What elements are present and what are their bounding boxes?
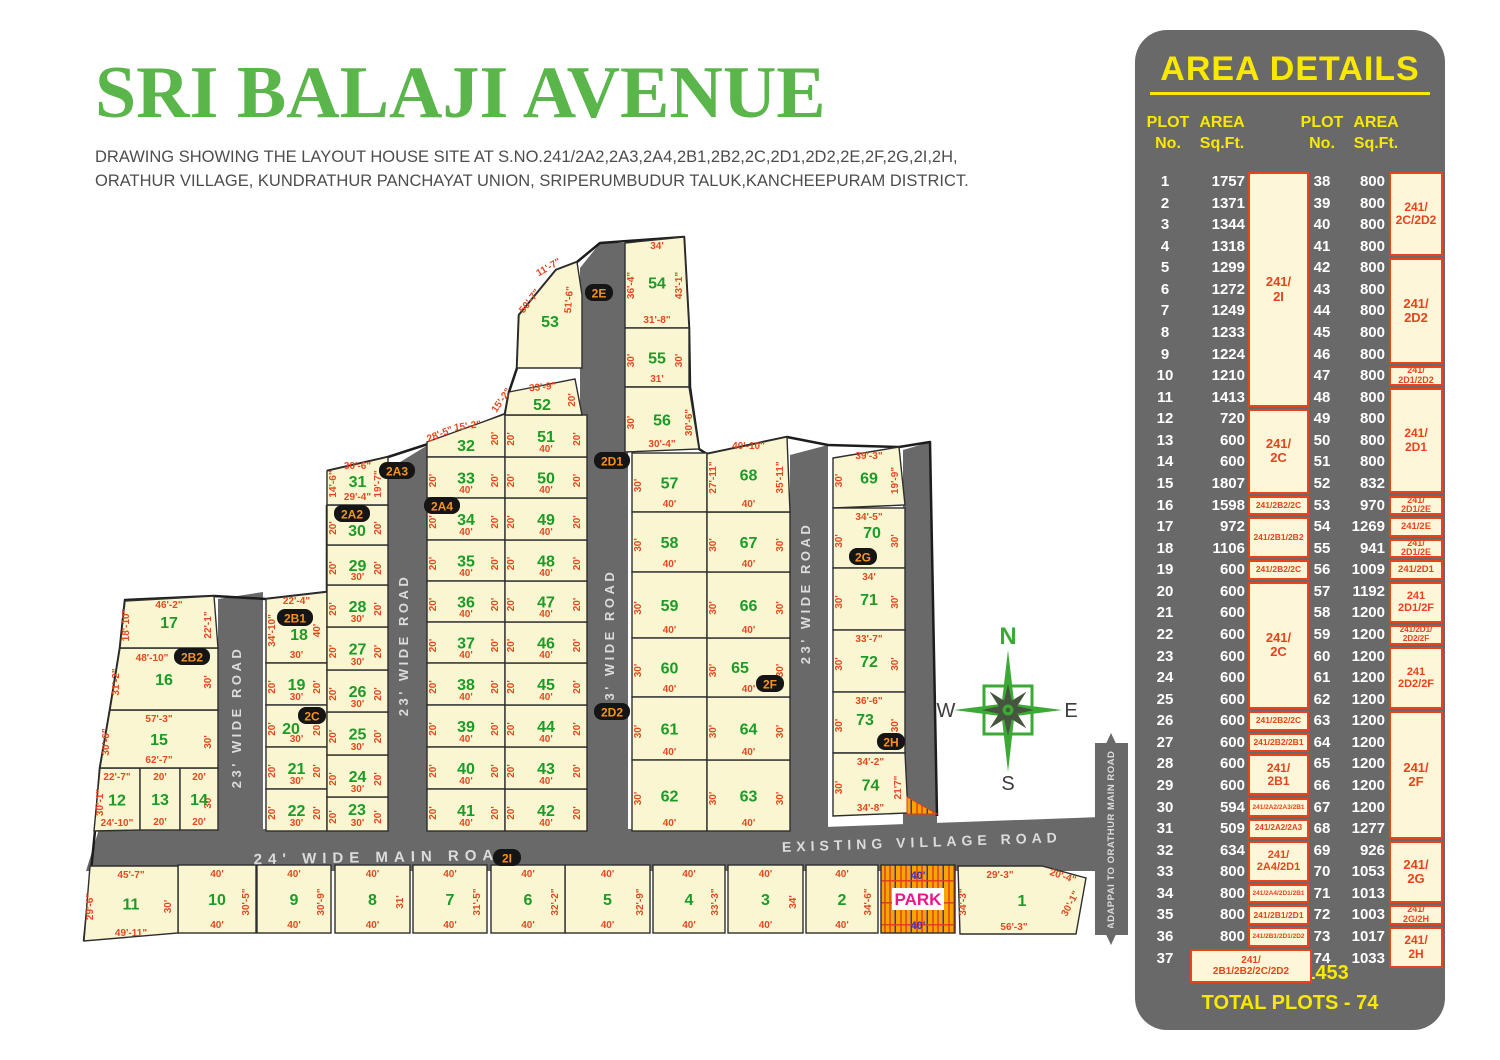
plot-area-64: 1200 <box>1325 732 1385 754</box>
plot-4-dim-bottom: 40' <box>682 920 696 931</box>
plot-18-dim-bottom: 30' <box>290 650 304 661</box>
plot-area-32: 634 <box>1185 840 1245 862</box>
plot-24-dim-left: 20' <box>328 772 339 786</box>
plot-27-dim-bottom: 30' <box>351 657 365 668</box>
plot-no-19: 19 <box>1143 559 1187 581</box>
plot-area-57: 1192 <box>1325 581 1385 603</box>
plot-area-6: 1272 <box>1185 279 1245 301</box>
plot-43-number: 43 <box>537 761 555 778</box>
plot-51-dim-right: 20' <box>572 432 583 446</box>
col-header-plot-left: PLOT <box>1143 114 1193 132</box>
badge-2E-label: 2E <box>592 287 607 301</box>
plot-23-dim-left: 20' <box>328 810 339 824</box>
col-header-no-left: No. <box>1143 135 1193 153</box>
plot-64-dim-right: 30' <box>775 725 786 739</box>
plot-52-number: 52 <box>533 397 551 414</box>
plot-20-dim-left: 20' <box>267 722 278 736</box>
plot-26-dim-right: 20' <box>373 687 384 701</box>
road-label-4: 23' WIDE ROAD <box>602 569 617 712</box>
plot-no-7: 7 <box>1143 300 1187 322</box>
plot-area-50: 800 <box>1325 430 1385 452</box>
plot-area-15: 1807 <box>1185 473 1245 495</box>
plot-no-16: 16 <box>1143 495 1187 517</box>
plot-55-number: 55 <box>648 351 666 368</box>
plot-area-56: 1009 <box>1325 559 1385 581</box>
plot-22-dim-right: 20' <box>312 806 323 820</box>
plot-area-20: 600 <box>1185 581 1245 603</box>
survey-group-241-2A2-2A3: 241/2A2/2A3 <box>1248 819 1309 839</box>
plot-69-dim-top: 39'-3" <box>855 451 882 462</box>
plot-44-dim-left: 20' <box>506 722 517 736</box>
plot-28-dim-left: 20' <box>328 602 339 616</box>
plot-area-1: 1757 <box>1185 171 1245 193</box>
plot-35-dim-right: 20' <box>490 557 501 571</box>
plot-no-5: 5 <box>1143 257 1187 279</box>
plot-area-72: 1003 <box>1325 904 1385 926</box>
plot-area-61: 1200 <box>1325 667 1385 689</box>
plot-61-number: 61 <box>661 722 679 739</box>
plot-no-27: 27 <box>1143 732 1187 754</box>
plot-7-dim-top: 40' <box>443 869 457 880</box>
plot-63-dim-left: 30' <box>708 792 719 806</box>
plot-area-29: 600 <box>1185 775 1245 797</box>
plot-62-dim-left: 30' <box>633 792 644 806</box>
badge-2D2-label: 2D2 <box>601 706 623 720</box>
plot-2-dim-right: 34'-6" <box>863 888 874 915</box>
plot-35-number: 35 <box>457 554 475 571</box>
plot-19-number: 19 <box>288 677 306 694</box>
plot-area-34: 800 <box>1185 883 1245 905</box>
area-details-title: AREA DETAILS <box>1150 50 1429 95</box>
plot-25-dim-right: 20' <box>373 730 384 744</box>
plot-no-33: 33 <box>1143 861 1187 883</box>
plot-no-21: 21 <box>1143 602 1187 624</box>
plot-54-dim-top: 34' <box>650 241 664 252</box>
plot-area-59: 1200 <box>1325 624 1385 646</box>
compass-n-label: N <box>999 623 1016 650</box>
plot-area-62: 1200 <box>1325 689 1385 711</box>
plot-40-number: 40 <box>457 761 475 778</box>
plot-no-32: 32 <box>1143 840 1187 862</box>
plot-49-dim-left: 20' <box>506 515 517 529</box>
plot-12-dim-left: 30'-1" <box>95 789 106 816</box>
plot-49-number: 49 <box>537 512 555 529</box>
plot-56-dim-left: 30' <box>626 416 637 430</box>
plot-27-dim-right: 20' <box>373 645 384 659</box>
survey-group-241-2G: 241/2G <box>1389 841 1443 904</box>
plot-area-30: 594 <box>1185 797 1245 819</box>
plot-no-4: 4 <box>1143 236 1187 258</box>
plot-63-dim-right: 30' <box>775 792 786 806</box>
plot-46-dim-left: 20' <box>506 639 517 653</box>
plot-10-dim-bottom: 40' <box>210 920 224 931</box>
plot-no-36: 36 <box>1143 926 1187 948</box>
survey-group-241-2F: 241/2F <box>1389 711 1443 838</box>
plot-68-dim-right: 35'-11" <box>775 461 786 493</box>
plot-4-dim-right: 33'-3" <box>710 888 721 915</box>
plot-area-19: 600 <box>1185 559 1245 581</box>
plot-71-dim-top: 34' <box>862 572 876 583</box>
plot-66-dim-left: 30' <box>708 601 719 615</box>
plot-area-48: 800 <box>1325 387 1385 409</box>
plot-29-dim-right: 20' <box>373 561 384 575</box>
survey-group-241-2B1-2B2-2C-2D2: 241/2B1/2B2/2C/2D2 <box>1190 949 1312 983</box>
plot-area-65: 1200 <box>1325 753 1385 775</box>
plot-no-18: 18 <box>1143 538 1187 560</box>
plot-area-71: 1013 <box>1325 883 1385 905</box>
plot-69-number: 69 <box>860 471 878 488</box>
plot-62-number: 62 <box>661 789 679 806</box>
plot-70-dim-top: 34'-5" <box>855 512 882 523</box>
col-header-plot-right: PLOT <box>1297 114 1347 132</box>
plot-33-dim-left: 20' <box>428 474 439 488</box>
badge-2C-label: 2C <box>304 710 320 724</box>
plot-74-dim-top: 34'-2" <box>857 757 884 768</box>
plot-45-dim-right: 20' <box>572 680 583 694</box>
plot-54-dim-left: 36'-4" <box>626 272 637 299</box>
plot-44-dim-right: 20' <box>572 722 583 736</box>
plot-13-dim-bottom: 20' <box>153 817 167 828</box>
plot-2-dim-top: 40' <box>835 869 849 880</box>
plot-area-40: 800 <box>1325 214 1385 236</box>
plot-16-dim-left: 31'-2" <box>111 668 122 695</box>
compass-hub-dot <box>1006 708 1010 712</box>
col-header-area-left: AREA <box>1195 114 1249 132</box>
plot-21-dim-left: 20' <box>267 764 278 778</box>
plot-58-number: 58 <box>661 535 679 552</box>
survey-group-241-2A2-2A3-2B1: 241/2A2/2A3/2B1 <box>1248 798 1309 818</box>
plot-area-54: 1269 <box>1325 516 1385 538</box>
plot-area-52: 832 <box>1325 473 1385 495</box>
plot-area-69: 926 <box>1325 840 1385 862</box>
badge-2D1-label: 2D1 <box>601 455 623 469</box>
plot-area-5: 1299 <box>1185 257 1245 279</box>
plot-area-55: 941 <box>1325 538 1385 560</box>
plot-9-dim-right: 30'-9" <box>316 888 327 915</box>
badge-2I-label: 2I <box>502 852 512 866</box>
plot-61-dim-bottom: 40' <box>663 747 677 758</box>
plot-1-dim: 56'-3" <box>1000 922 1027 933</box>
plot-no-25: 25 <box>1143 689 1187 711</box>
plot-area-12: 720 <box>1185 408 1245 430</box>
col-header-area-right: AREA <box>1347 114 1405 132</box>
plot-3-dim-bottom: 40' <box>759 920 773 931</box>
plot-39-dim-right: 20' <box>490 722 501 736</box>
plot-67-dim-left: 30' <box>708 538 719 552</box>
plot-74-number: 74 <box>862 778 880 795</box>
plot-46-dim-right: 20' <box>572 639 583 653</box>
survey-group-241-2B1-2D1: 241/2B1/2D1 <box>1248 905 1309 925</box>
plot-2-number: 2 <box>838 892 847 909</box>
plot-73-dim-right: 30' <box>890 719 901 733</box>
plot-39-number: 39 <box>457 719 475 736</box>
plot-45-number: 45 <box>537 677 555 694</box>
plot-40-dim-left: 20' <box>428 764 439 778</box>
survey-group-241-2I: 241/2I <box>1248 172 1309 407</box>
plot-area-7: 1249 <box>1185 300 1245 322</box>
plot-no-6: 6 <box>1143 279 1187 301</box>
plot-no-10: 10 <box>1143 365 1187 387</box>
park-dim-bottom: 40' <box>911 920 926 932</box>
plot-3-dim-right: 34' <box>788 895 799 909</box>
page-title: SRI BALAJI AVENUE <box>95 56 935 130</box>
plot-36-dim-left: 20' <box>428 598 439 612</box>
plot-21-number: 21 <box>288 761 306 778</box>
plot-47-dim-right: 20' <box>572 598 583 612</box>
plot-74-dim-right: 21'7" <box>893 775 904 799</box>
survey-group-241-2G-2H: 241/2G/2H <box>1389 905 1443 925</box>
plot-15-number: 15 <box>150 732 168 749</box>
survey-group-241-2D1-2E: 241/2D1/2E <box>1389 496 1443 516</box>
plot-no-34: 34 <box>1143 883 1187 905</box>
plot-42-dim-left: 20' <box>506 806 517 820</box>
compass-e-label: E <box>1064 700 1077 722</box>
plot-57-dim-left: 30' <box>633 479 644 493</box>
plot-34-dim-right: 20' <box>490 515 501 529</box>
badge-2A4-label: 2A4 <box>431 500 453 514</box>
plot-17-dim-top: 46'-2" <box>155 600 182 611</box>
plot-33-dim-right: 20' <box>490 474 501 488</box>
plot-no-23: 23 <box>1143 646 1187 668</box>
plot-31-dim-left: 14'-6" <box>328 470 339 497</box>
total-plots: TOTAL PLOTS - 74 <box>1135 992 1445 1015</box>
plot-area-36: 800 <box>1185 926 1245 948</box>
plot-13-number: 13 <box>151 792 169 809</box>
plot-4-dim-top: 40' <box>682 869 696 880</box>
plot-65-dim-bottom: 40' <box>742 684 756 695</box>
plot-10-dim-right: 30'-5" <box>241 888 252 915</box>
plot-10-dim-top: 40' <box>210 869 224 880</box>
plot-66-dim-right: 30' <box>775 601 786 615</box>
plot-9-dim-bottom: 40' <box>287 920 301 931</box>
plot-13-dim-top: 20' <box>153 772 167 783</box>
subtitle-line-2: ORATHUR VILLAGE, KUNDRATHUR PANCHAYAT UN… <box>95 172 969 191</box>
plot-18-number: 18 <box>290 627 308 644</box>
plot-73-dim-top: 36'-6" <box>855 696 882 707</box>
plot-42-dim-right: 20' <box>572 806 583 820</box>
plot-25-number: 25 <box>349 727 367 744</box>
survey-group-2412D1-2F: 2412D1/2F <box>1389 582 1443 623</box>
plot-9-dim-top: 40' <box>287 869 301 880</box>
survey-group-241-2B2-2C: 241/2B2/2C <box>1248 560 1309 580</box>
plot-65-number: 65 <box>731 660 749 677</box>
plot-5-number: 5 <box>603 892 612 909</box>
survey-group-241-2H: 241/2H <box>1389 927 1443 968</box>
compass-w-label: W <box>937 700 956 722</box>
plot-29-dim-left: 20' <box>328 561 339 575</box>
plot-no-14: 14 <box>1143 451 1187 473</box>
plot-area-73: 1017 <box>1325 926 1385 948</box>
plot-26-number: 26 <box>349 684 367 701</box>
plot-no-17: 17 <box>1143 516 1187 538</box>
plot-1-number: 1 <box>1018 893 1027 910</box>
plot-no-22: 22 <box>1143 624 1187 646</box>
plot-11-dim-bottom: 49'-11" <box>115 928 147 939</box>
plot-16-dim-right: 30' <box>203 675 214 689</box>
plot-70-number: 70 <box>863 525 881 542</box>
plot-51-dim-left: 20' <box>506 432 517 446</box>
plot-58-dim-bottom: 40' <box>663 559 677 570</box>
survey-group-241-2D2: 241/2D2 <box>1389 258 1443 364</box>
plot-70-dim-right: 30' <box>890 534 901 548</box>
plot-7-dim-bottom: 40' <box>443 920 457 931</box>
plot-60-dim-bottom: 40' <box>663 684 677 695</box>
plot-73-number: 73 <box>856 712 874 729</box>
badge-2G-label: 2G <box>855 551 871 565</box>
plot-72-dim-top: 33'-7" <box>855 634 882 645</box>
plot-8-dim-top: 40' <box>366 869 380 880</box>
plot-24-dim-right: 20' <box>373 772 384 786</box>
plot-23-dim-right: 20' <box>373 810 384 824</box>
plot-11-dim-left: 29'-6" <box>85 893 96 920</box>
plot-area-38: 800 <box>1325 171 1385 193</box>
plot-6-dim-bottom: 40' <box>521 920 535 931</box>
plot-9-number: 9 <box>290 892 299 909</box>
plot-60-number: 60 <box>661 661 679 678</box>
plot-48-number: 48 <box>537 554 555 571</box>
plot-66-dim-bottom: 40' <box>742 625 756 636</box>
plot-37-dim-right: 20' <box>490 639 501 653</box>
plot-25-dim-left: 20' <box>328 730 339 744</box>
compass-s-label: S <box>1001 773 1014 795</box>
plot-area-9: 1224 <box>1185 344 1245 366</box>
plot-47-dim-left: 20' <box>506 598 517 612</box>
plot-11-dim-right: 30' <box>163 900 174 914</box>
plot-area-51: 800 <box>1325 451 1385 473</box>
plot-34-number: 34 <box>457 512 475 529</box>
plot-area-10: 1210 <box>1185 365 1245 387</box>
plot-area-26: 600 <box>1185 710 1245 732</box>
plot-19-dim-right: 20' <box>312 680 323 694</box>
plot-area-67: 1200 <box>1325 797 1385 819</box>
plot-28-number: 28 <box>349 599 367 616</box>
plot-4-number: 4 <box>685 892 694 909</box>
park-label: PARK <box>895 890 943 909</box>
plot-area-8: 1233 <box>1185 322 1245 344</box>
plot-26-dim-left: 20' <box>328 687 339 701</box>
plot-area-66: 1200 <box>1325 775 1385 797</box>
road-arrow-0 <box>1103 733 1119 750</box>
plot-area-45: 800 <box>1325 322 1385 344</box>
plot-56-number: 56 <box>653 413 671 430</box>
plot-area-22: 600 <box>1185 624 1245 646</box>
plot-6-dim-top: 40' <box>521 869 535 880</box>
plot-24-number: 24 <box>349 769 367 786</box>
plot-66-number: 66 <box>740 598 758 615</box>
plot-71-dim-left: 30' <box>834 595 845 609</box>
plot-60-dim-left: 30' <box>633 664 644 678</box>
plot-area-24: 600 <box>1185 667 1245 689</box>
plot-6-dim-right: 32'-2" <box>550 888 561 915</box>
plot-area-21: 600 <box>1185 602 1245 624</box>
area-details-panel: AREA DETAILS PLOT No. AREA Sq.Ft. PLOT N… <box>1135 30 1445 1030</box>
plot-3-number: 3 <box>761 892 770 909</box>
plot-59-dim-bottom: 40' <box>663 625 677 636</box>
plot-area-41: 800 <box>1325 236 1385 258</box>
plot-11-number: 11 <box>123 897 140 914</box>
plot-64-dim-bottom: 40' <box>742 747 756 758</box>
plot-71-number: 71 <box>860 592 878 609</box>
survey-group-2412D2-2F: 2412D2/2F <box>1389 647 1443 710</box>
badge-2H-label: 2H <box>883 736 898 750</box>
plot-no-12: 12 <box>1143 408 1187 430</box>
plot-area-58: 1200 <box>1325 602 1385 624</box>
plot-no-35: 35 <box>1143 904 1187 926</box>
plot-68-dim-bottom: 40' <box>742 499 756 510</box>
survey-group-241-2A4-2D1-2B1: 241/2A4/2D1/2B1 <box>1248 884 1309 904</box>
plot-7-number: 7 <box>446 892 455 909</box>
survey-group-241-2B1-2B2: 241/2B1/2B2 <box>1248 517 1309 558</box>
plot-area-44: 800 <box>1325 300 1385 322</box>
plot-74-dim-left: 30' <box>834 781 845 795</box>
plot-21-dim-right: 20' <box>312 764 323 778</box>
plot-39-dim-left: 20' <box>428 722 439 736</box>
plot-16-dim: 48'-10" <box>136 653 169 664</box>
plot-67-dim-bottom: 40' <box>742 559 756 570</box>
plot-area-46: 800 <box>1325 344 1385 366</box>
plot-36-dim-right: 20' <box>490 598 501 612</box>
plot-25-dim-bottom: 30' <box>351 742 365 753</box>
plot-41-dim-right: 20' <box>490 806 501 820</box>
plot-53-number: 53 <box>541 314 559 331</box>
plot-37-number: 37 <box>457 636 475 653</box>
plot-64-number: 64 <box>740 722 758 739</box>
survey-group-241-2D1-2D2-2F: 241/2D1/2D2/2F <box>1389 625 1443 645</box>
plot-area-28: 600 <box>1185 753 1245 775</box>
road-label-3: 23' WIDE ROAD <box>396 574 411 717</box>
plot-area-31: 509 <box>1185 818 1245 840</box>
plot-10-number: 10 <box>208 892 226 909</box>
plot-31-dim-bottom: 29'-4" <box>344 492 371 503</box>
road-arrow-1 <box>1103 928 1119 945</box>
plot-48-dim-left: 20' <box>506 557 517 571</box>
survey-group-241-2B1: 241/2B1 <box>1248 754 1309 795</box>
plot-17-dim-right: 22'-1" <box>203 611 214 638</box>
plot-3-dim-top: 40' <box>759 869 773 880</box>
road-label-6: PADAPPAI TO ORATHUR MAIN ROAD <box>1106 751 1117 936</box>
plot-area-35: 800 <box>1185 904 1245 926</box>
survey-group-241-2D1: 241/2D1 <box>1389 560 1443 580</box>
plot-area-70: 1053 <box>1325 861 1385 883</box>
plot-17-dim-left: 18'-10" <box>121 608 132 641</box>
plot-31-number: 31 <box>349 474 367 491</box>
plot-50-number: 50 <box>537 471 555 488</box>
plot-area-53: 970 <box>1325 495 1385 517</box>
plot-54-dim-right: 43'-1" <box>674 272 685 299</box>
plot-28-dim-right: 20' <box>373 602 384 616</box>
plot-7-dim-right: 31'-5" <box>472 888 483 915</box>
plot-37-dim-left: 20' <box>428 639 439 653</box>
plot-22-number: 22 <box>288 803 306 820</box>
plot-area-43: 800 <box>1325 279 1385 301</box>
plot-31-dim-top: 30'-6" <box>344 461 371 472</box>
plot-no-20: 20 <box>1143 581 1187 603</box>
plot-30-dim-left: 20' <box>328 521 339 535</box>
plot-22-dim-left: 20' <box>267 806 278 820</box>
plot-no-2: 2 <box>1143 193 1187 215</box>
plot-area-42: 800 <box>1325 257 1385 279</box>
plot-30-number: 30 <box>348 523 366 540</box>
plot-45-dim-left: 20' <box>506 680 517 694</box>
plot-34-dim-left: 20' <box>428 515 439 529</box>
plot-area-4: 1318 <box>1185 236 1245 258</box>
plot-8-dim-bottom: 40' <box>366 920 380 931</box>
plot-74-dim-bottom: 34'-8" <box>857 803 884 814</box>
survey-group-241-2C: 241/2C <box>1248 582 1309 709</box>
plot-5-dim-right: 32'-9" <box>635 888 646 915</box>
plot-area-11: 1413 <box>1185 387 1245 409</box>
plot-55-dim-right: 30' <box>674 354 685 368</box>
